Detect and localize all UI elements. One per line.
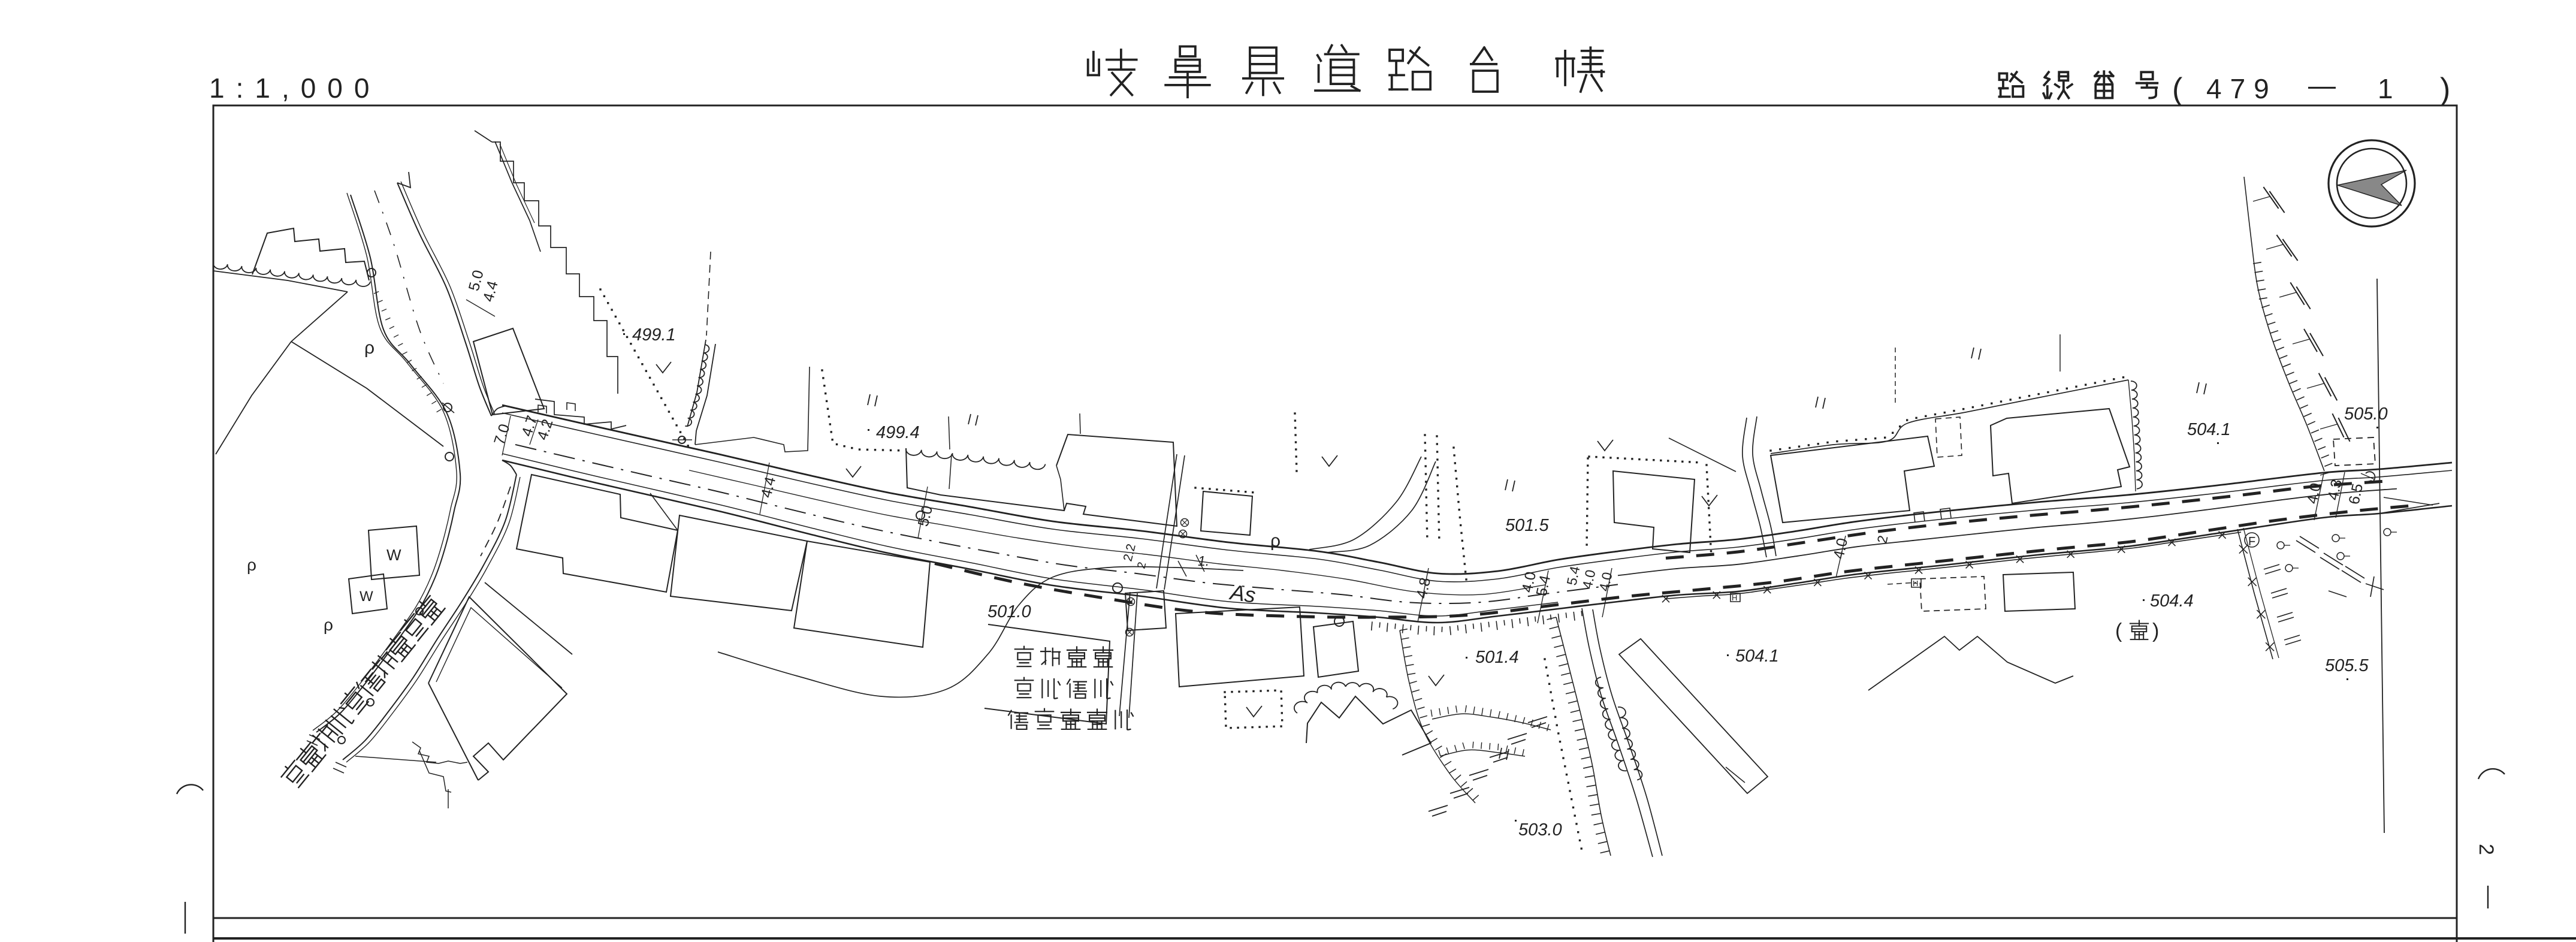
svg-text:499.4: 499.4	[876, 423, 920, 442]
svg-text:ρ: ρ	[247, 555, 256, 574]
svg-text:ρ: ρ	[364, 338, 375, 358]
svg-text:505.5: 505.5	[2325, 656, 2369, 675]
svg-text:As: As	[1228, 579, 1257, 608]
svg-text:F: F	[2248, 535, 2255, 548]
svg-text:505.0: 505.0	[2344, 404, 2388, 424]
svg-text:501.0: 501.0	[987, 602, 1031, 621]
svg-text:479: 479	[2206, 73, 2278, 104]
svg-text:(: (	[2172, 72, 2183, 107]
svg-text:501.4: 501.4	[1475, 648, 1519, 667]
svg-text:ρ: ρ	[324, 615, 333, 634]
svg-text:H: H	[1732, 593, 1737, 602]
svg-text:504.1: 504.1	[2187, 420, 2231, 439]
svg-text:W: W	[386, 546, 401, 564]
svg-text:1.: 1.	[1198, 553, 1209, 569]
svg-text:—: —	[2308, 70, 2336, 101]
svg-text:499.1: 499.1	[632, 325, 676, 345]
svg-text:): )	[2152, 620, 2159, 642]
svg-text:2: 2	[2475, 844, 2498, 855]
svg-text:1: 1	[2378, 73, 2393, 104]
svg-text:501.5: 501.5	[1505, 516, 1549, 535]
svg-text:(: (	[2115, 620, 2122, 642]
svg-text:1:1,000: 1:1,000	[209, 73, 380, 104]
svg-text:504.1: 504.1	[1735, 647, 1779, 666]
svg-text:): )	[2440, 72, 2450, 107]
svg-text:H: H	[1913, 579, 1918, 588]
svg-text:W: W	[360, 588, 373, 605]
svg-text:ρ: ρ	[1270, 531, 1281, 551]
svg-text:504.4: 504.4	[2150, 591, 2194, 611]
svg-text:503.0: 503.0	[1518, 820, 1562, 840]
